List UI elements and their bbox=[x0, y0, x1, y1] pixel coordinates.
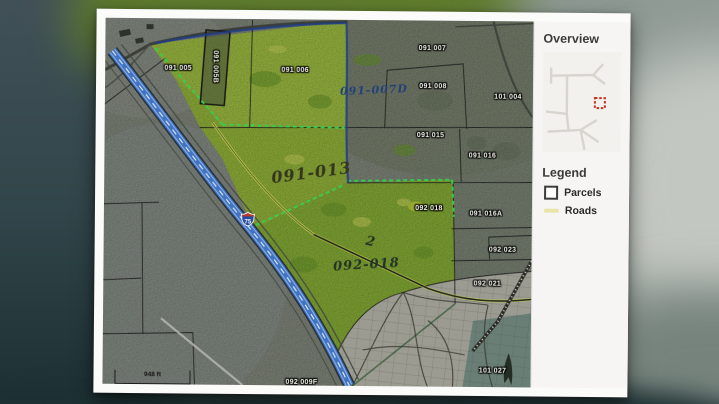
parcel-label: 091 016A bbox=[469, 210, 502, 217]
parcel-label: 091 006 bbox=[281, 67, 308, 74]
parcel-label: 092 018 bbox=[415, 205, 442, 212]
parcel-label: 091 005 bbox=[164, 65, 191, 72]
parcel-label: 091 015 bbox=[417, 132, 444, 139]
parcel-label: 101 027 bbox=[479, 368, 506, 375]
legend-title: Legend bbox=[542, 166, 623, 181]
parcel-label: 092 023 bbox=[489, 247, 516, 254]
map-scale-bar: 948 ft bbox=[114, 370, 190, 385]
parcel-label: 091 005B bbox=[212, 50, 219, 83]
map-sidebar: Overview Legend Parcels Roads bbox=[530, 21, 630, 388]
parcel-label: 091 008 bbox=[419, 83, 446, 90]
legend-label-roads: Roads bbox=[565, 205, 597, 217]
overview-title: Overview bbox=[543, 32, 624, 47]
gis-viewer-window: 75 091 005091 005B091 006091 007091 0081… bbox=[93, 9, 630, 398]
legend-label-parcels: Parcels bbox=[564, 187, 601, 199]
parcel-label: 091 016 bbox=[469, 152, 496, 159]
legend-item-parcels: Parcels bbox=[544, 186, 623, 201]
parcel-label: 091 007 bbox=[419, 45, 446, 52]
screenshot-background: 75 091 005091 005B091 006091 007091 0081… bbox=[0, 0, 719, 404]
legend-item-roads: Roads bbox=[544, 205, 623, 218]
svg-text:75: 75 bbox=[244, 219, 251, 225]
parcel-label: 092 009F bbox=[285, 379, 317, 386]
overview-map[interactable] bbox=[542, 52, 621, 153]
parcel-map-view[interactable]: 75 091 005091 005B091 006091 007091 0081… bbox=[102, 18, 533, 388]
parcel-label: 092 021 bbox=[474, 280, 501, 287]
parcel-label: 101 004 bbox=[494, 94, 521, 101]
scale-bar-label: 948 ft bbox=[115, 371, 189, 379]
parcel-swatch-icon bbox=[544, 186, 558, 200]
overview-roads bbox=[545, 64, 605, 151]
road-swatch-icon bbox=[544, 209, 559, 213]
aerial-map-canvas: 75 bbox=[102, 18, 533, 388]
overview-extent-marker bbox=[595, 98, 605, 108]
